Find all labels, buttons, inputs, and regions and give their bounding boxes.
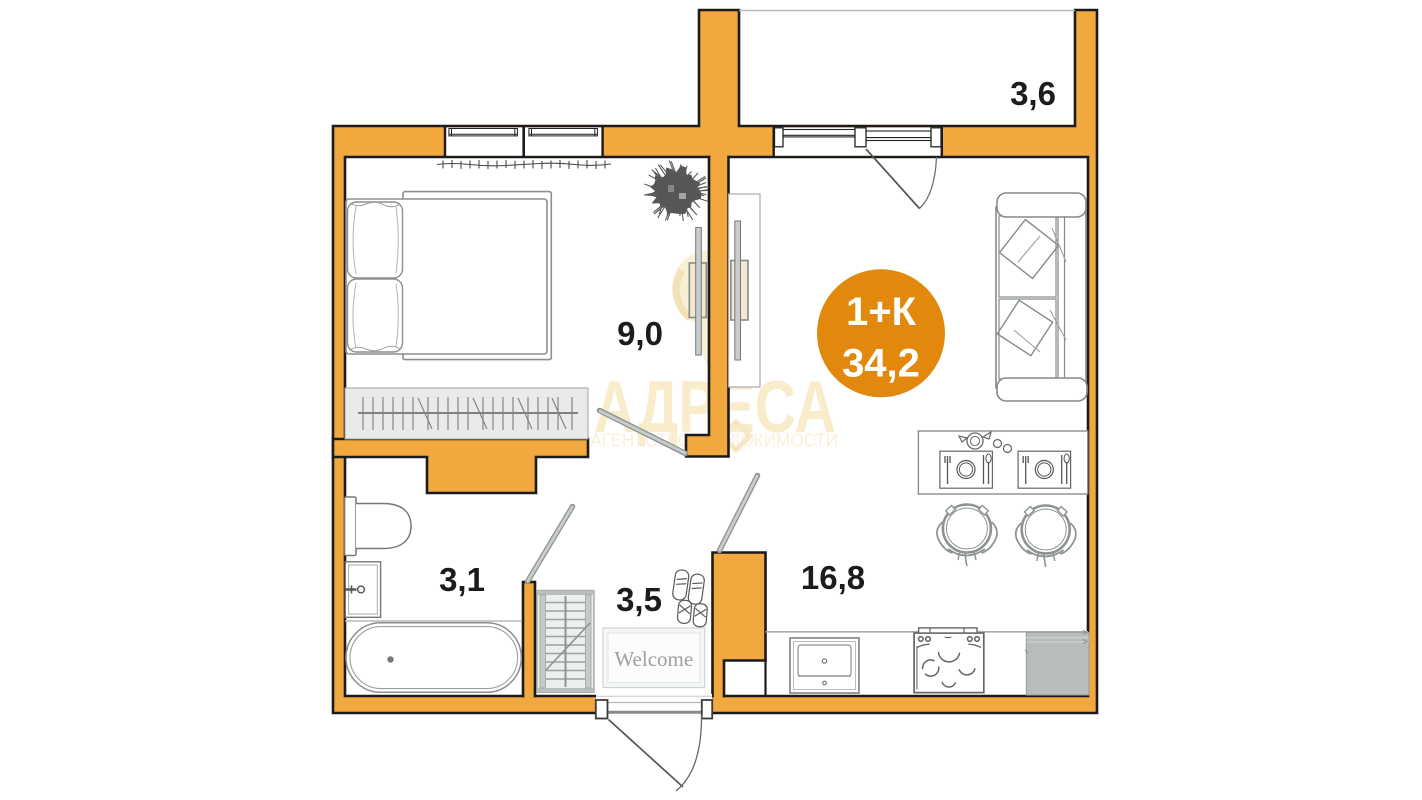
svg-text:1+К: 1+К bbox=[846, 290, 917, 334]
svg-text:3,1: 3,1 bbox=[439, 561, 485, 598]
svg-text:3,6: 3,6 bbox=[1010, 75, 1056, 112]
svg-text:34,2: 34,2 bbox=[842, 342, 920, 386]
svg-text:Welcome: Welcome bbox=[614, 647, 693, 671]
svg-text:9,0: 9,0 bbox=[617, 315, 663, 352]
svg-text:3,5: 3,5 bbox=[616, 581, 662, 618]
svg-text:16,8: 16,8 bbox=[801, 559, 865, 596]
